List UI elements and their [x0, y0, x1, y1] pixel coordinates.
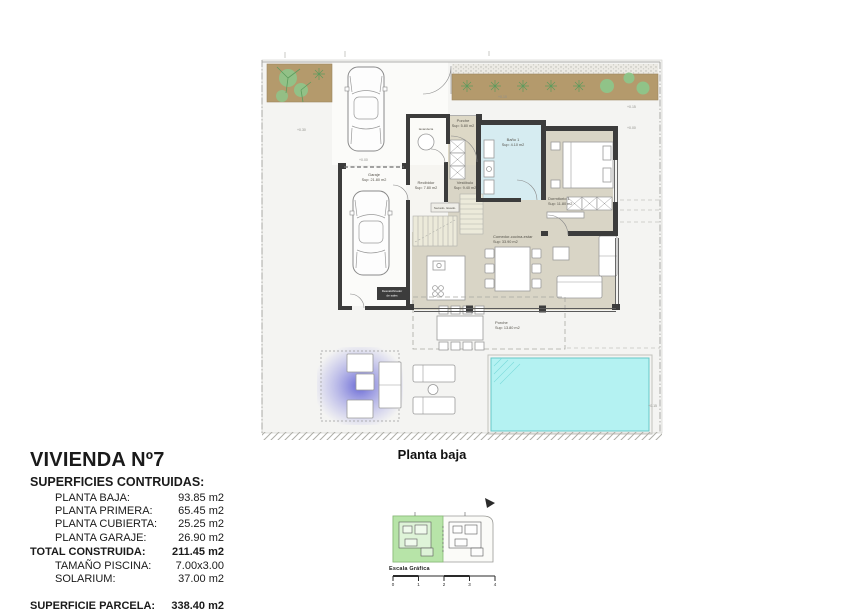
label-comedor: Comedor-cocina-estar: [493, 234, 533, 239]
site-plan: [385, 492, 505, 566]
parcel-row: SUPERFICIE PARCELA: 338.40 m2: [30, 600, 224, 613]
area-label: PLANTA PRIMERA:: [55, 505, 153, 518]
car-driveway: [345, 67, 387, 151]
area-row: PLANTA GARAJE: 26.90 m2: [30, 532, 224, 545]
elevation-1: +0.30: [297, 128, 306, 132]
label-bano-area: Sup: 4.10 m2: [502, 143, 525, 147]
area-value: 7.00x3.00: [176, 560, 224, 573]
label-porche2: Porche: [495, 320, 508, 325]
label-garaje: Garaje: [368, 172, 381, 177]
elevation-5: +0.00: [627, 126, 636, 130]
scale-bar: 0 1 2 3 4: [389, 573, 501, 587]
areas-subtitle: SUPERFICIES CONTRUIDAS:: [30, 475, 224, 489]
scale-tick: 0: [392, 582, 395, 587]
label-porche1: Porche: [457, 118, 470, 123]
elevation-3: +0.10: [498, 95, 507, 99]
scale-block: Escala Gráfica 0 1 2 3 4: [389, 566, 501, 587]
bench-note: Secado. lavado.: [434, 206, 456, 210]
label-lavanderia: lavandería: [419, 127, 434, 131]
drawing-sheet: Descalcificador de sales Secado. lavado.…: [0, 0, 850, 614]
page-title: VIVIENDA Nº7: [30, 449, 224, 472]
lounge-set: [317, 347, 403, 425]
ground-hatch: [262, 432, 662, 440]
water-softener-text: Descalcificador: [382, 289, 402, 293]
area-label: PLANTA GARAJE:: [55, 532, 147, 545]
north-arrow-icon: [485, 498, 495, 508]
area-label: TAMAÑO PISCINA:: [55, 560, 151, 573]
floor-plan-drawing: Descalcificador de sales Secado. lavado.…: [255, 50, 665, 442]
pool: [488, 355, 652, 434]
area-row: TAMAÑO PISCINA: 7.00x3.00: [30, 560, 224, 573]
area-label: PLANTA CUBIERTA:: [55, 518, 157, 531]
area-value: 65.45 m2: [178, 505, 224, 518]
area-row: PLANTA CUBIERTA: 25.25 m2: [30, 518, 224, 531]
sofa: [557, 276, 602, 298]
washing-machine-icon: [418, 134, 434, 150]
total-label: TOTAL CONSTRUIDA:: [30, 546, 146, 559]
label-vestibulo: Vestíbulo: [457, 180, 474, 185]
scale-tick: 4: [494, 582, 497, 587]
title-block: VIVIENDA Nº7 SUPERFICIES CONTRUIDAS: PLA…: [30, 449, 224, 614]
area-row: PLANTA PRIMERA: 65.45 m2: [30, 505, 224, 518]
parcel-label: SUPERFICIE PARCELA:: [30, 600, 155, 613]
label-garaje-area: Sup: 21.80 m2: [362, 178, 387, 182]
area-row: SOLARIUM: 37.00 m2: [30, 573, 224, 586]
water-softener-label: Descalcificador de sales: [377, 287, 407, 300]
area-value: 25.25 m2: [178, 518, 224, 531]
area-value: 93.85 m2: [178, 492, 224, 505]
dining-table: [495, 247, 530, 291]
label-vestibulo-area: Sup: 9.40 m2: [454, 186, 477, 190]
elevation-4: +0.15: [627, 105, 636, 109]
label-bano: Baño 1: [507, 137, 520, 142]
plan-caption: Planta baja: [372, 447, 492, 462]
outdoor-table: [437, 316, 483, 340]
area-label: SOLARIUM:: [55, 573, 116, 586]
total-value: 211.45 m2: [172, 546, 224, 559]
area-row: PLANTA BAJA: 93.85 m2: [30, 492, 224, 505]
label-dormitorio-area: Sup: 11.80 m2: [548, 202, 572, 206]
laundry-bench: Secado. lavado.: [431, 203, 459, 212]
elevation-2: +0.00: [359, 158, 368, 162]
scale-tick: 1: [417, 582, 420, 587]
label-dormitorio: Dormitorio 1: [548, 196, 571, 201]
scale-tick: 2: [443, 582, 446, 587]
car-garage: [350, 191, 392, 275]
label-porche2-area: Sup: 13.80 m2: [495, 326, 520, 330]
label-recibidor-area: Sup: 7.80 m2: [415, 186, 438, 190]
elevation-6: +0.15: [648, 404, 657, 408]
label-porche1-area: Sup: 5.80 m2: [452, 124, 475, 128]
boundary-ticks: [285, 51, 489, 58]
scale-tick: 3: [468, 582, 471, 587]
label-comedor-area: Sup: 33.90 m2: [493, 240, 518, 244]
planting-beds: [267, 64, 658, 102]
area-value: 37.00 m2: [178, 573, 224, 586]
area-label: PLANTA BAJA:: [55, 492, 130, 505]
scale-label: Escala Gráfica: [389, 566, 501, 572]
area-value: 26.90 m2: [178, 532, 224, 545]
water-softener-text2: de sales: [386, 294, 398, 298]
parcel-value: 338.40 m2: [171, 600, 224, 613]
label-recibidor: Recibidor: [418, 180, 436, 185]
total-row: TOTAL CONSTRUIDA: 211.45 m2: [30, 546, 224, 559]
